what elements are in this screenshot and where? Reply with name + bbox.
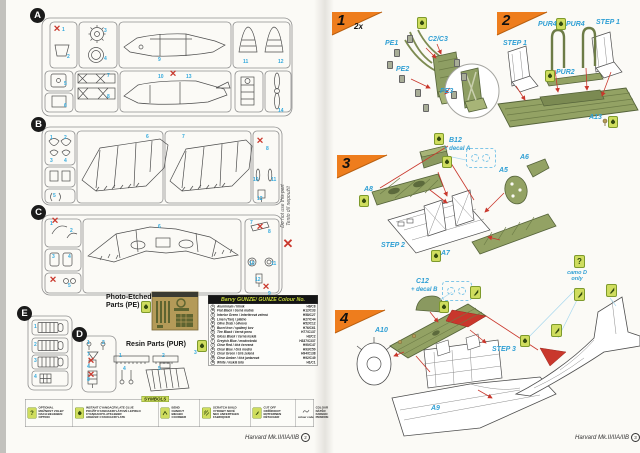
colour-table-row: JClear Red / čirá červenáH90/C47 [209, 343, 318, 347]
part-number: 6 [158, 224, 161, 230]
colour-name: Aluminium / hliník [217, 305, 306, 309]
bend-icon [161, 408, 170, 419]
step1-number: 1 [337, 12, 345, 29]
symbols-item-text: COLOURNÁTĚRFARBENPEINDRE [316, 407, 329, 420]
part-number: 1 [87, 340, 90, 346]
symbols-item: INSTANT CYANOACRYLATE GLUEPOUŽÍT KYANOAK… [73, 400, 159, 427]
do-not-use-note: Do not use this part Tento díl nepoužít [281, 175, 293, 237]
label-a10: A10 [375, 327, 388, 334]
symbols-item: SCRATCH BUILDVYROBIT NOVÉNEU ANFERTIGENF… [200, 400, 251, 427]
colour-name: Clear Amber / čirá jantarová [217, 356, 303, 360]
symbols-legend: SYMBOLS ?OPTIONALMOŽNOST VOLBYNACH BELIE… [25, 399, 313, 427]
part-number: 8 [268, 229, 271, 235]
part-number: 12 [278, 59, 284, 65]
part-number: 4 [104, 56, 107, 62]
red-x-icon: ✕ [283, 236, 294, 252]
label-pur4-a: PUR4 [538, 21, 557, 28]
part-number: 2 [162, 353, 165, 359]
do-not-use-note-cs: Tento díl nepoužít [287, 175, 293, 237]
colour-code: H92/C49 [303, 356, 316, 360]
part-number: 2 [102, 340, 105, 346]
decal-a-sketch-icon [466, 148, 496, 168]
label-pe2: PE2 [396, 66, 409, 73]
step4-artwork [357, 288, 640, 436]
sprue-e-badge: E [17, 306, 32, 321]
gunze-colour-table: Barvy GUNZE/ GUNZE Colour No. AAluminium… [208, 295, 318, 365]
part-number: 8 [266, 146, 269, 152]
colour-letter: N [211, 360, 216, 365]
colour-code: H52/C12 [303, 322, 316, 326]
label-a13: A13 [589, 114, 602, 121]
colour-name: Clear Green / čirá zelená [217, 352, 301, 356]
scratch-build-icon [202, 408, 211, 419]
cut-off-icon [574, 288, 585, 301]
red-x-icon: ✕ [49, 275, 57, 286]
part-number: 11 [271, 261, 276, 267]
pe-label-line1: Photo-Etched [106, 294, 152, 302]
right-page-number: 3 [631, 433, 640, 442]
part-number: 7 [250, 220, 253, 226]
decal-b-sketch-icon [442, 281, 472, 301]
pe-buckle-part [415, 89, 421, 97]
colour-table-body: AAluminium / hliníkH8/C8BFlat Black / če… [208, 304, 318, 366]
colour-name: Clear Red / čirá červená [217, 344, 303, 348]
glue-icon [417, 17, 427, 29]
part-number: 3 [104, 28, 107, 34]
pe-fret-artwork [152, 292, 198, 330]
sprue-c-artwork [42, 215, 282, 295]
colour-code: H2/C2 [306, 335, 315, 339]
optional-icon: ? [574, 255, 585, 268]
label-decal-a: + decal A [444, 146, 470, 152]
part-number: 2 [34, 342, 37, 348]
symbols-item: BENDOHNOUTBIEGENCOURBER [159, 400, 201, 427]
part-number: 1 [50, 135, 53, 141]
colour-code-caption: colour code [298, 416, 314, 419]
left-page-number: 2 [301, 433, 310, 442]
red-x-icon: ✕ [169, 69, 177, 80]
cut-off-icon [606, 284, 617, 297]
part-number: 3 [34, 358, 37, 364]
symbols-item: colour codeCOLOURNÁTĚRFARBENPEINDRE [296, 400, 340, 427]
colour-name: Olive Drab / olivová [217, 322, 303, 326]
sprue-d-badge: D [72, 327, 87, 342]
sprue-a-badge: A [30, 8, 45, 23]
colour-name: Interior Green / interiérová zelená [217, 313, 303, 317]
part-number: 10 [249, 261, 255, 267]
left-page-footer: Harvard Mk.II/IIA/IIB 2 [198, 433, 310, 442]
colour-name: Tire Black / černá pneu [217, 331, 301, 335]
red-x-icon: ✕ [262, 282, 270, 293]
instruction-sheet: A B C E D Do not use this part Tento díl… [0, 0, 640, 453]
sprue-b-artwork [42, 127, 282, 205]
camo-note: camo D only [562, 270, 592, 282]
label-step3-ref: STEP 3 [492, 346, 516, 353]
glue-icon [434, 133, 444, 145]
colour-name: Gloss Black / černá lesklá [217, 335, 306, 339]
part-number: 2 [64, 135, 67, 141]
cut-off-icon [470, 286, 481, 299]
part-number: 3 [50, 158, 53, 164]
colour-code: H337/C337 [299, 339, 315, 343]
footer-title: Harvard Mk.II/IIA/IIB [575, 435, 629, 441]
pe-buckle-part [399, 75, 405, 83]
colour-table-row: AAluminium / hliníkH8/C8 [209, 305, 318, 309]
part-number: 12 [255, 277, 261, 283]
label-step2-ref: STEP 2 [381, 242, 405, 249]
glue-icon [608, 116, 618, 128]
colour-table-row: EOlive Drab / olivováH52/C12 [209, 322, 318, 326]
part-number: 6 [64, 103, 67, 109]
symbols-title: SYMBOLS [142, 396, 169, 402]
label-a7: A7 [441, 250, 450, 257]
step4-number: 4 [340, 310, 348, 327]
step1-quantity: 2x [354, 22, 363, 31]
label-step1-ref-a: STEP 1 [596, 19, 620, 26]
colour-name: Burnt Iron / spálený kov [217, 326, 303, 330]
footer-title: Harvard Mk.II/IIA/IIB [245, 435, 299, 441]
symbols-item: CUT OFFODŘÍZNOUTENTFERNENDÉTACHER [251, 400, 297, 427]
red-x-icon: ✕ [256, 136, 264, 147]
part-number: 9 [158, 57, 161, 63]
red-x-icon: ✕ [256, 222, 264, 233]
colour-table-row: GTire Black / černá pneuH77/C137 [209, 330, 318, 334]
sprue-c-badge: C [31, 205, 46, 220]
colour-name: Linen (Tan) / plátno [217, 318, 303, 322]
part-number: 2 [67, 54, 70, 60]
optional-icon: ? [28, 408, 37, 419]
colour-code: H90/C47 [303, 344, 316, 348]
symbols-item-text: OPTIONALMOŽNOST VOLBYNACH BELIEBENOPTION [39, 407, 64, 420]
colour-table-row: HGloss Black / černá leskláH2/C2 [209, 335, 318, 339]
pe-label-line2: Parts (PE) [106, 302, 152, 310]
label-pe3: PE3 [440, 88, 453, 95]
colour-code: H58/C27 [303, 313, 316, 317]
label-a8: A8 [364, 186, 373, 193]
glue-icon [359, 195, 369, 207]
part-number: 4 [68, 254, 71, 260]
label-a5: A5 [499, 167, 508, 174]
symbols-item-text: CUT OFFODŘÍZNOUTENTFERNENDÉTACHER [264, 407, 282, 420]
cut-off-icon [551, 324, 562, 337]
part-number: 5 [158, 366, 161, 372]
colour-name: White / lesklá bílá [217, 361, 306, 365]
part-number: 13 [186, 74, 192, 80]
right-page-footer: Harvard Mk.II/IIA/IIB 3 [556, 433, 640, 442]
glue-icon [442, 156, 452, 168]
label-pe1: PE1 [385, 40, 398, 47]
colour-table-row: IGreyish Blue / modrošedáH337/C337 [209, 339, 318, 343]
label-b12: B12 [449, 137, 462, 144]
colour-code: H27/C44 [303, 318, 316, 322]
glue-icon [431, 250, 441, 262]
colour-name: Flat Black / černá matná [217, 309, 303, 313]
resin-parts-artwork [114, 356, 189, 391]
pe-buckle-part [394, 49, 400, 57]
colour-table-row: KClear Blue / čirá modráH93/C50 [209, 347, 318, 351]
pe-parts-label: Photo-Etched Parts (PE) [106, 294, 152, 309]
red-x-icon: ✕ [87, 370, 95, 381]
label-a6: A6 [520, 154, 529, 161]
step1-artwork [405, 30, 499, 118]
colour-code: H77/C137 [301, 331, 315, 335]
label-c2c3: C2/C3 [428, 36, 448, 43]
colour-code: H76/C61 [303, 326, 316, 330]
part-number: 10 [158, 74, 164, 80]
glue-icon [197, 340, 207, 352]
part-number: 6 [146, 134, 149, 140]
pe-buckle-part [423, 104, 429, 112]
label-c12: C12 [416, 278, 429, 285]
label-pur2: PUR2 [556, 69, 575, 76]
label-a9: A9 [431, 405, 440, 412]
colour-name: Greyish Blue / modrošedá [217, 339, 299, 343]
part-number: 7 [182, 134, 185, 140]
pe-buckle-part [407, 35, 413, 43]
symbols-item: ?OPTIONALMOŽNOST VOLBYNACH BELIEBENOPTIO… [26, 400, 74, 427]
colour-table-row: FBurnt Iron / spálený kovH76/C61 [209, 326, 318, 330]
colour-table-row: MClear Amber / čirá jantarováH92/C49 [209, 356, 318, 360]
symbols-item-text: SCRATCH BUILDVYROBIT NOVÉNEU ANFERTIGENF… [213, 407, 239, 420]
colour-table-row: NWhite / lesklá bíláH1/C1 [209, 360, 318, 364]
part-number: 11 [271, 177, 276, 183]
part-number: 1 [34, 324, 37, 330]
colour-code: H94/C138 [301, 352, 315, 356]
pe-buckle-part [461, 73, 467, 81]
glue-icon [545, 70, 555, 82]
colour-code: H1/C1 [306, 361, 315, 365]
colour-table-title: Barvy GUNZE/ GUNZE Colour No. [208, 295, 318, 304]
label-step1-ref-b: STEP 1 [503, 40, 527, 47]
part-number: 10 [253, 177, 259, 183]
part-number: 5 [68, 283, 71, 289]
glue-icon [520, 335, 530, 347]
part-number: 4 [34, 374, 37, 380]
colour-code: H8/C8 [306, 305, 315, 309]
colour-code: H12/C33 [303, 309, 316, 313]
symbols-item-text: INSTANT CYANOACRYLATE GLUEPOUŽÍT KYANOAK… [86, 407, 141, 420]
symbols-item-text: BENDOHNOUTBIEGENCOURBER [172, 407, 187, 420]
colour-table-row: DLinen (Tan) / plátnoH27/C44 [209, 317, 318, 321]
part-number: 4 [123, 366, 126, 372]
glue-icon [75, 408, 84, 419]
label-decal-b: + decal B [411, 287, 438, 293]
colour-name: Clear Blue / čirá modrá [217, 348, 303, 352]
part-number: 12 [257, 196, 263, 202]
red-x-icon: ✕ [51, 216, 59, 227]
part-number: 11 [243, 59, 248, 65]
glue-icon [439, 301, 449, 313]
part-number: 1 [119, 353, 122, 359]
cut-off-icon [253, 408, 262, 419]
sprue-a-artwork [42, 18, 292, 116]
part-number: 14 [278, 108, 284, 114]
glue-icon [556, 18, 566, 30]
part-number: 4 [64, 158, 67, 164]
resin-parts-label: Resin Parts (PUR) [126, 341, 186, 349]
red-x-icon: ✕ [53, 24, 61, 35]
sprue-b-badge: B [31, 117, 46, 132]
step2-number: 2 [502, 12, 510, 29]
part-number: 8 [107, 94, 110, 100]
step3-number: 3 [342, 155, 350, 172]
part-number: 2 [70, 228, 73, 234]
colour-table-row: LClear Green / čirá zelenáH94/C138 [209, 352, 318, 356]
colour-code: H93/C50 [303, 348, 316, 352]
colour-table-row: BFlat Black / černá matnáH12/C33 [209, 309, 318, 313]
part-number: 7 [107, 73, 110, 79]
colour-table-row: CInterior Green / interiérová zelenáH58/… [209, 313, 318, 317]
label-pur4-b: PUR4 [566, 21, 585, 28]
colour-code-icon: colour code [298, 407, 314, 419]
part-number: 1 [62, 27, 65, 33]
step3-artwork [372, 146, 556, 254]
part-number: 3 [52, 254, 55, 260]
pe-buckle-part [387, 61, 393, 69]
artwork-layer [0, 0, 640, 453]
red-x-icon: ✕ [87, 356, 95, 367]
part-number: 5 [64, 81, 67, 87]
pe-buckle-part [454, 59, 460, 67]
part-number: 5 [53, 193, 56, 199]
